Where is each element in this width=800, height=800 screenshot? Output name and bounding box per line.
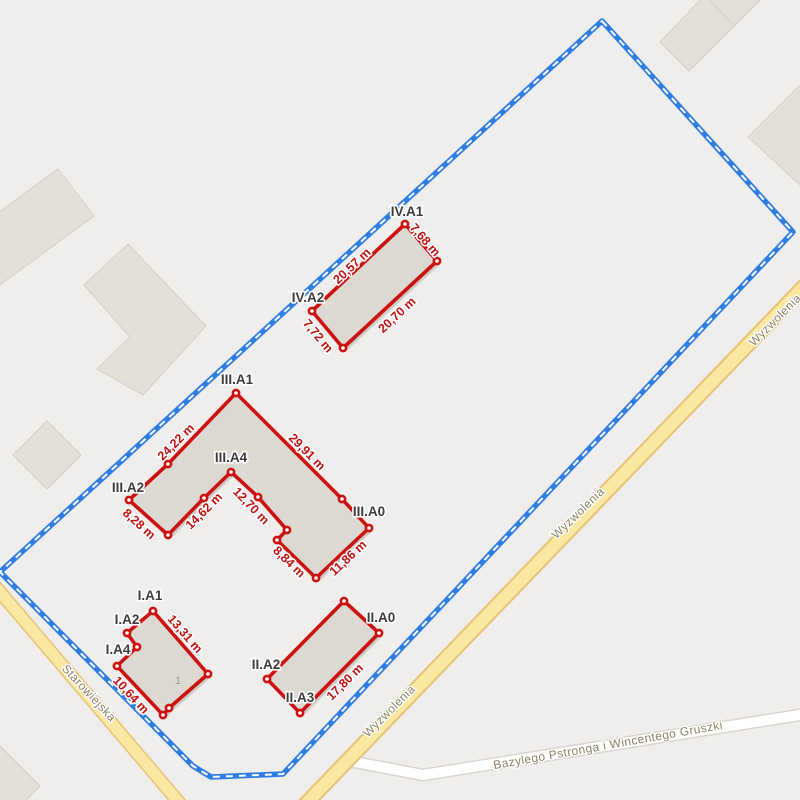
- vertex-label: II.A0: [367, 610, 396, 625]
- vertex-handle[interactable]: [114, 663, 120, 669]
- vertex-label: IV.A1: [391, 204, 424, 219]
- map-canvas: WyzwoleniaWyzwoleniaWyzwoleniaStarowiejs…: [0, 0, 800, 800]
- vertex-label: II.A2: [252, 657, 281, 672]
- vertex-handle[interactable]: [402, 221, 408, 227]
- vertex-label: IV.A2: [292, 290, 325, 305]
- vertex-handle[interactable]: [166, 705, 172, 711]
- vertex-handle[interactable]: [340, 345, 346, 351]
- house-number: 1: [175, 675, 181, 687]
- vertex-handle[interactable]: [297, 710, 303, 716]
- vertex-handle[interactable]: [134, 644, 140, 650]
- vertex-handle[interactable]: [150, 608, 156, 614]
- vertex-handle[interactable]: [434, 258, 440, 264]
- vertex-handle[interactable]: [341, 598, 347, 604]
- vertex-handle[interactable]: [366, 525, 372, 531]
- vertex-handle[interactable]: [126, 497, 132, 503]
- vertex-handle[interactable]: [205, 671, 211, 677]
- vertex-label: III.A1: [221, 372, 254, 387]
- vertex-label: II.A3: [286, 690, 315, 705]
- vertex-label: I.A4: [106, 642, 131, 657]
- vertex-handle[interactable]: [376, 630, 382, 636]
- vertex-label: I.A2: [115, 612, 140, 627]
- vertex-handle[interactable]: [313, 575, 319, 581]
- vertex-handle[interactable]: [160, 712, 166, 718]
- vertex-handle[interactable]: [309, 308, 315, 314]
- vertex-handle[interactable]: [233, 390, 239, 396]
- vertex-handle[interactable]: [228, 469, 234, 475]
- vertex-handle[interactable]: [284, 527, 290, 533]
- vertex-handle[interactable]: [274, 537, 280, 543]
- vertex-label: I.A1: [138, 588, 163, 603]
- vertex-handle[interactable]: [339, 496, 345, 502]
- vertex-label: III.A0: [353, 504, 385, 519]
- vertex-handle[interactable]: [165, 532, 171, 538]
- vertex-handle[interactable]: [255, 494, 261, 500]
- map-viewport: WyzwoleniaWyzwoleniaWyzwoleniaStarowiejs…: [0, 0, 800, 800]
- vertex-label: III.A4: [215, 450, 248, 465]
- vertex-label: III.A2: [112, 480, 144, 495]
- vertex-handle[interactable]: [264, 676, 270, 682]
- vertex-handle[interactable]: [124, 630, 130, 636]
